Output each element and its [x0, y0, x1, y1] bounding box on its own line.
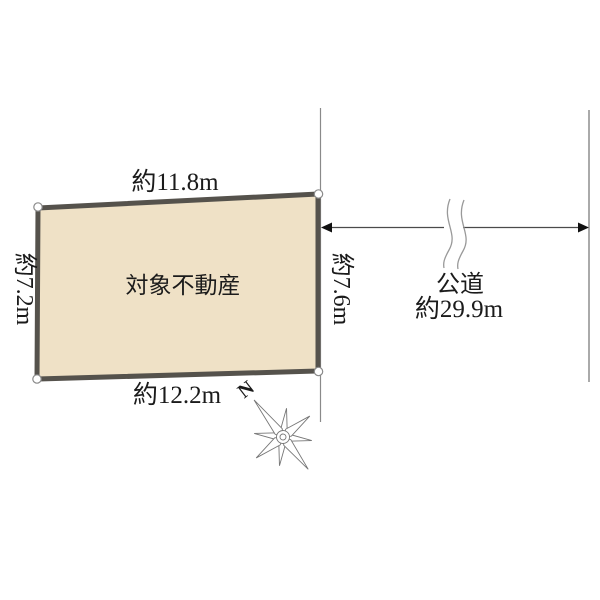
- property-site-plan: N 約11.8m 約7.2m 約7.6m 約12.2m 対象不動産 公道 約29…: [0, 0, 600, 600]
- survey-point-marker: [314, 367, 322, 375]
- property-left-dimension: 約7.2m: [11, 253, 38, 326]
- survey-point-marker: [34, 203, 42, 211]
- property-bottom-dimension: 約12.2m: [133, 381, 222, 409]
- land-plot-diagram: N 約11.8m 約7.2m 約7.6m 約12.2m 対象不動産 公道 約29…: [0, 0, 600, 600]
- survey-point-marker: [314, 190, 322, 198]
- road-width-arrow: [321, 223, 589, 233]
- arrowhead-right-icon: [578, 223, 589, 233]
- road-name-label: 公道: [436, 271, 484, 298]
- break-mark-icon: [444, 199, 466, 269]
- road-length-label: 約29.9m: [415, 295, 504, 323]
- survey-point-marker: [33, 375, 41, 383]
- compass-north-label: N: [234, 376, 259, 403]
- property-name-label: 対象不動産: [126, 273, 241, 298]
- arrowhead-left-icon: [321, 223, 332, 233]
- property-top-dimension: 約11.8m: [131, 168, 219, 196]
- property-right-dimension: 約7.6m: [328, 253, 355, 326]
